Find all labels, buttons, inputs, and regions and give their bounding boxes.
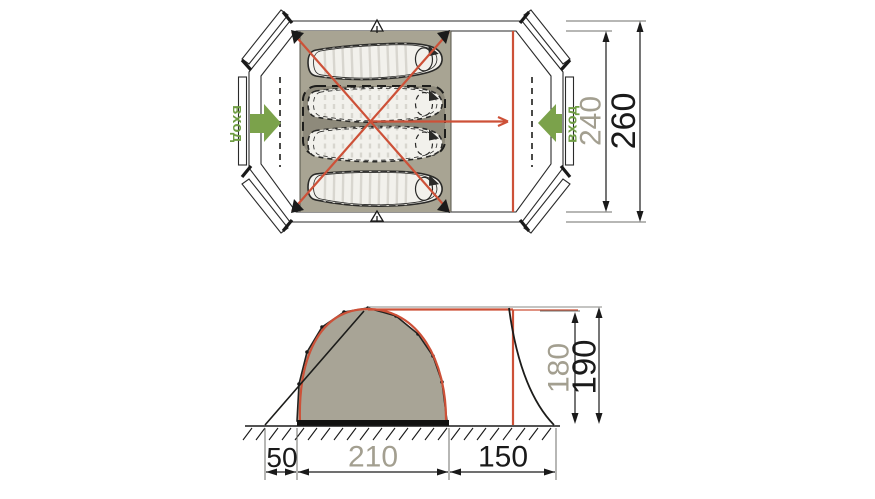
entrance-label-left: вход: [229, 105, 246, 143]
top-view-dimensions: 240 260: [566, 21, 646, 222]
dim-length-vestibule-label: 150: [478, 441, 528, 474]
dim-width-inner-label: 240: [575, 96, 608, 146]
dim-height-outer-label: 190: [566, 339, 603, 394]
tent-top-view: вход вход 240 260: [229, 10, 646, 233]
vent-arrow-top-icon: [371, 20, 383, 33]
dim-width-outer-label: 260: [605, 93, 643, 150]
height-dimensions: 180 190: [540, 307, 603, 424]
entrance-arrow-left-icon: [250, 104, 281, 142]
inner-dome: [297, 308, 447, 421]
entrance-arrow-right-icon: [538, 104, 562, 142]
length-dimensions: 50 210 150: [265, 428, 556, 480]
vent-arrow-bottom-icon: [371, 211, 383, 222]
sleeping-bag-4: [308, 169, 443, 208]
ground-hatching: [243, 428, 551, 440]
dim-offset-left-label: 50: [266, 442, 297, 473]
tent-dimension-diagram: вход вход 240 260: [0, 0, 875, 499]
tent-side-view: 180 190 50 210 150: [243, 306, 603, 480]
diagram-canvas: вход вход 240 260: [0, 0, 875, 499]
dim-length-sleeping-label: 210: [348, 441, 398, 474]
tent-floor-bar: [297, 420, 449, 426]
sleeping-bag-3: [308, 126, 442, 162]
